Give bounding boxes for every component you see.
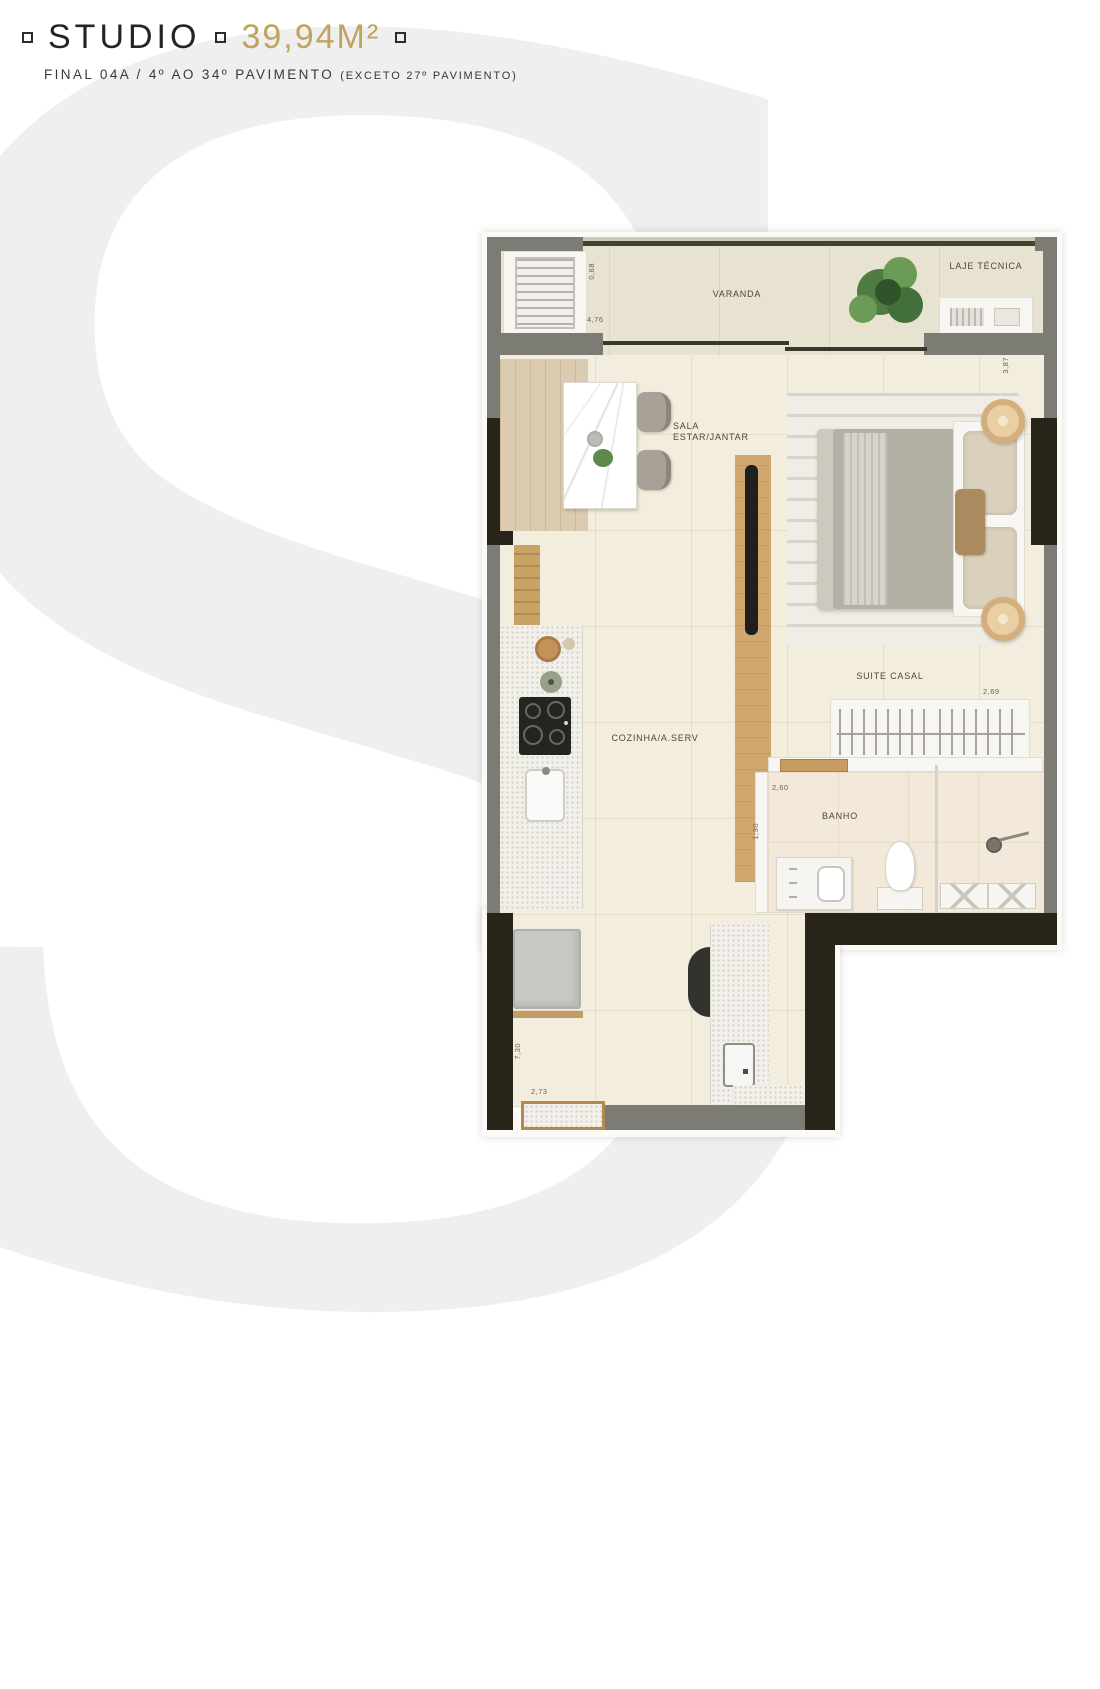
kitchen-counter	[500, 625, 583, 909]
ac-grille	[950, 308, 984, 326]
table-bowl	[587, 431, 603, 447]
small-bowl	[563, 638, 575, 650]
vanity	[776, 857, 852, 910]
dining-table	[563, 382, 637, 509]
wall-top-left	[487, 237, 583, 251]
wall-left-dark-lower	[487, 913, 513, 1130]
shower-drain-grate	[940, 883, 988, 909]
floor-plan: 0,68 VARANDA LAJE TÉCNICA 4,76 SALA ESTA…	[487, 237, 1057, 1155]
wall-right-dark-column	[1031, 418, 1057, 545]
plant-leaf	[875, 279, 901, 305]
washing-machine	[513, 929, 581, 1009]
dim-banho-depth: 1,30	[751, 823, 760, 840]
bullet-square-icon	[22, 32, 33, 43]
plant-leaf	[849, 295, 877, 323]
entry-floor-patch	[733, 1085, 803, 1105]
vanity-sink	[817, 866, 845, 902]
subtitle: FINAL 04A / 4º AO 34º PAVIMENTO (EXCETO …	[44, 67, 518, 82]
small-appliance	[723, 1043, 755, 1087]
tv	[745, 465, 758, 635]
wooden-bowl	[535, 636, 561, 662]
toilet-bowl	[885, 841, 915, 891]
room-label-sala: SALA ESTAR/JANTAR	[673, 421, 773, 444]
wall-right	[1044, 545, 1057, 913]
dim-suite-width: 2,69	[983, 687, 1000, 696]
closet-hangers	[939, 709, 1023, 755]
drawer-handle	[789, 868, 797, 870]
burner	[549, 729, 565, 745]
ac-grille	[994, 308, 1020, 326]
dining-chair	[637, 450, 671, 490]
title-text: STUDIO	[48, 18, 200, 57]
dining-chair	[637, 392, 671, 432]
ac-condenser-unit	[939, 297, 1033, 335]
closet-rail	[837, 733, 1025, 735]
shower-glass-partition	[935, 765, 938, 913]
louver-vent	[515, 257, 575, 329]
burner	[523, 725, 543, 745]
varanda-glass-railing	[579, 241, 1041, 246]
room-label-cozinha: COZINHA/A.SERV	[605, 733, 705, 744]
dim-leg-height: 7,30	[513, 1043, 522, 1060]
room-label-suite: SUITE CASAL	[840, 671, 940, 682]
bathroom-door-leaf	[780, 759, 848, 772]
dim-entry-width: 2,73	[531, 1087, 548, 1096]
burner	[525, 703, 541, 719]
bed-lumbar-pillow	[955, 489, 985, 555]
room-label-banho: BANHO	[797, 811, 883, 822]
drawer-handle	[789, 896, 797, 898]
fan	[688, 947, 710, 1017]
dim-sala-depth: 3,87	[1001, 357, 1010, 374]
rattan-pouf	[981, 597, 1025, 641]
faucet	[542, 767, 550, 775]
wall-bottom	[603, 1105, 805, 1130]
drawer-handle	[789, 882, 797, 884]
drain	[548, 679, 554, 685]
rattan-pouf	[981, 399, 1025, 443]
kitchen-sink	[525, 769, 565, 822]
wood-shelf	[513, 1011, 583, 1018]
cooktop-knob	[564, 721, 568, 725]
sliding-door-panel	[785, 347, 927, 351]
closet-hangers	[839, 709, 927, 755]
appliance-button	[743, 1069, 748, 1074]
bathroom-left-wall	[755, 772, 768, 913]
subtitle-note: (EXCETO 27º PAVIMENTO)	[340, 70, 517, 82]
sliding-door-panel	[603, 341, 789, 345]
cooktop	[519, 697, 571, 755]
wall-slider-left-stub	[487, 333, 603, 357]
plant	[847, 253, 925, 333]
room-label-laje-tecnica: LAJE TÉCNICA	[939, 261, 1033, 272]
wall-right	[1044, 355, 1057, 418]
dim-varanda-depth: 0,68	[587, 263, 596, 280]
wall-slider-right-stub	[924, 333, 1057, 357]
subtitle-main: FINAL 04A / 4º AO 34º PAVIMENTO	[44, 67, 334, 82]
table-plant	[593, 449, 613, 467]
bed-throw-blanket	[843, 433, 887, 605]
dim-varanda-width: 4,76	[587, 315, 604, 324]
title-area-value: 39,94M²	[241, 18, 380, 57]
bullet-square-icon	[215, 32, 226, 43]
page-title: STUDIO 39,94M²	[22, 18, 518, 57]
entry-door-threshold	[521, 1101, 605, 1130]
dim-banho-width: 2,60	[772, 783, 789, 792]
wall-left	[487, 545, 500, 913]
room-label-varanda: VARANDA	[687, 289, 787, 300]
kitchen-tall-shelf	[514, 545, 540, 627]
burner	[547, 701, 565, 719]
wall-left	[487, 355, 500, 418]
header: STUDIO 39,94M² FINAL 04A / 4º AO 34º PAV…	[22, 18, 518, 82]
wall-dark-vertical	[805, 913, 835, 1130]
wall-dark-horizontal	[805, 913, 1057, 945]
bullet-square-icon	[395, 32, 406, 43]
shower-drain-grate	[988, 883, 1036, 909]
